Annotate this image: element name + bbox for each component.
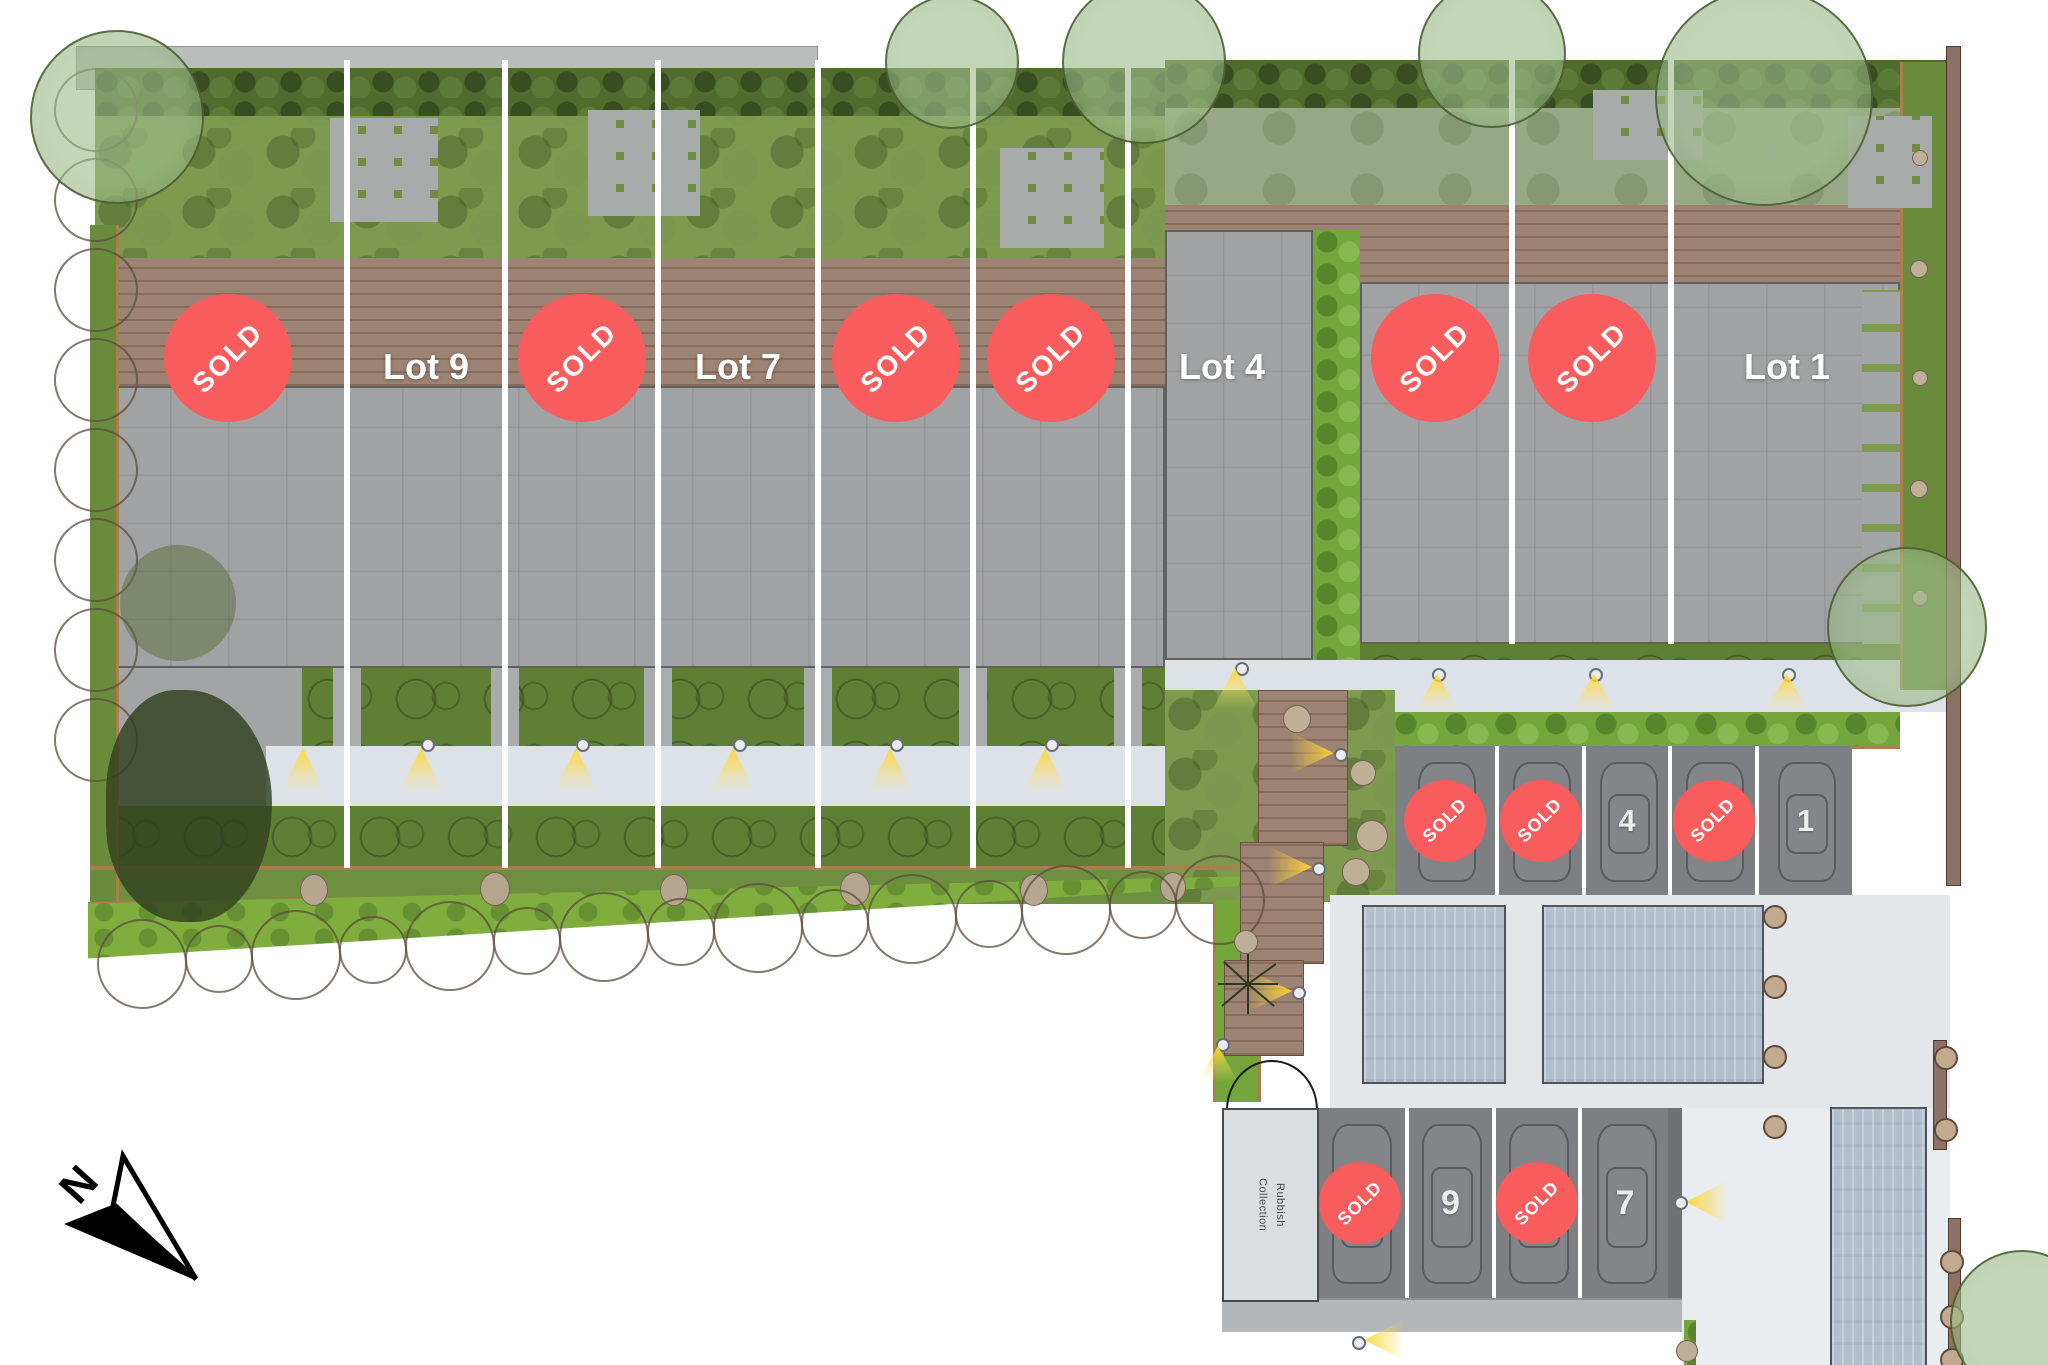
sold-badge-label: SOLD: [1510, 1176, 1563, 1229]
tree-outline: [185, 925, 253, 993]
lot-unit[interactable]: Lot 4: [1131, 60, 1313, 660]
sold-badge: SOLD: [1496, 1162, 1578, 1244]
lot-unit[interactable]: SOLD: [112, 60, 344, 868]
gate-swing: [1272, 1060, 1318, 1110]
stepping-stone: [1356, 820, 1388, 852]
tree-outline: [1109, 871, 1177, 939]
sold-badge: SOLD: [1500, 780, 1582, 862]
north-label: N: [50, 1157, 108, 1213]
lot-unit[interactable]: SOLD: [976, 60, 1125, 868]
agave-plant-icon: [1216, 952, 1280, 1016]
sold-badge-label: SOLD: [1687, 794, 1740, 847]
bollard: [1934, 1046, 1958, 1070]
wall-light: [1674, 1196, 1688, 1210]
lot-unit[interactable]: SOLD: [1515, 60, 1668, 644]
parking-stall[interactable]: 4: [1586, 746, 1668, 895]
lot-label: Lot 4: [1179, 346, 1265, 388]
tree-outline: [647, 898, 715, 966]
sold-badge-label: SOLD: [186, 316, 269, 399]
stall-number: 7: [1616, 1184, 1635, 1223]
parking-stall[interactable]: SOLD: [1499, 746, 1582, 895]
lot-label: Lot 7: [695, 346, 781, 388]
stepping-stone: [1350, 760, 1376, 786]
path-light: [1292, 986, 1306, 1000]
tree-outline: [867, 874, 957, 964]
parking-stall[interactable]: SOLD: [1672, 746, 1755, 895]
bollard: [1763, 905, 1787, 929]
tree-outline: [97, 919, 187, 1009]
bollard: [1940, 1250, 1964, 1274]
lot-unit[interactable]: Lot 1: [1674, 60, 1900, 644]
sold-badge: SOLD: [518, 294, 646, 422]
garage-roof: [1542, 905, 1764, 1084]
rubbish-collection-label: Rubbish Collection: [1253, 1178, 1288, 1231]
tree-outline: [559, 892, 649, 982]
stepping-stone: [1912, 150, 1928, 166]
sold-badge-label: SOLD: [1514, 794, 1567, 847]
sold-badge-label: SOLD: [1418, 794, 1471, 847]
parking-stall[interactable]: SOLD: [1315, 1108, 1405, 1298]
tree-outline: [493, 907, 561, 975]
bollard: [1763, 975, 1787, 999]
tree-outline: [955, 880, 1023, 948]
parking-stall[interactable]: 9: [1409, 1108, 1492, 1298]
parking-stall[interactable]: 7: [1582, 1108, 1668, 1298]
lot-unit[interactable]: SOLD: [821, 60, 970, 868]
sold-badge: SOLD: [832, 294, 960, 422]
stepping-stone: [1912, 370, 1928, 386]
lot-unit[interactable]: Lot 7: [661, 60, 815, 868]
shrub: [480, 872, 510, 906]
garage-roof: [1362, 905, 1506, 1084]
path-light: [1312, 862, 1326, 876]
fence-post: [1676, 1340, 1698, 1362]
sold-badge-label: SOLD: [1333, 1176, 1386, 1229]
tree-outline: [251, 910, 341, 1000]
sold-badge-label: SOLD: [1550, 316, 1633, 399]
site-plan: SOLD SOLD 4 SOLD 1 Rubbis: [0, 0, 2048, 1365]
upper-parking-row: SOLD SOLD 4 SOLD 1: [1395, 746, 1852, 895]
parking-apron: [1222, 1298, 1682, 1332]
lot-label: Lot 1: [1744, 346, 1830, 388]
sold-badge-label: SOLD: [854, 316, 937, 399]
north-arrow-icon: N: [40, 1130, 240, 1330]
bollard: [1763, 1115, 1787, 1139]
lot-unit[interactable]: Lot 9: [350, 60, 502, 868]
tree-outline: [801, 889, 869, 957]
path-light: [1352, 1336, 1366, 1350]
side-garden-strip: [1313, 230, 1360, 660]
lot-unit[interactable]: SOLD: [1360, 60, 1509, 644]
parking-hedge-strip: [1392, 712, 1900, 749]
stepping-stone: [1910, 260, 1928, 278]
lower-parking-row: SOLD 9 SOLD 7: [1315, 1108, 1668, 1298]
bollard: [1934, 1118, 1958, 1142]
boundary-fence: [1946, 46, 1961, 886]
sold-badge: SOLD: [1673, 780, 1755, 862]
tree-outline: [713, 883, 803, 973]
stepping-stone: [1283, 705, 1311, 733]
tree-canopy: [1950, 1250, 2048, 1365]
sold-badge: SOLD: [1528, 294, 1656, 422]
tree-outline: [1021, 865, 1111, 955]
lot-unit[interactable]: SOLD: [508, 60, 655, 868]
sold-badge-label: SOLD: [540, 316, 623, 399]
stall-number: 9: [1441, 1184, 1460, 1223]
sold-badge: SOLD: [164, 294, 292, 422]
sold-badge: SOLD: [1404, 780, 1486, 862]
shrub: [300, 874, 328, 906]
lot-label: Lot 9: [383, 346, 469, 388]
sold-badge: SOLD: [1319, 1162, 1401, 1244]
parking-stall[interactable]: 1: [1759, 746, 1852, 895]
sold-badge-label: SOLD: [1009, 316, 1092, 399]
parking-stall[interactable]: SOLD: [1496, 1108, 1578, 1298]
tree-outline: [339, 916, 407, 984]
stall-number: 1: [1797, 803, 1814, 839]
sold-badge-label: SOLD: [1393, 316, 1476, 399]
parking-stall[interactable]: SOLD: [1395, 746, 1495, 895]
sold-badge: SOLD: [1371, 294, 1499, 422]
sold-badge: SOLD: [987, 294, 1115, 422]
rubbish-collection-room: Rubbish Collection: [1222, 1108, 1319, 1302]
bollard: [1763, 1045, 1787, 1069]
stepping-stone: [1342, 858, 1370, 886]
path-light: [1334, 748, 1348, 762]
stall-number: 4: [1618, 803, 1635, 839]
tree-outline: [405, 901, 495, 991]
garage-roof: [1830, 1107, 1927, 1365]
stepping-stone: [1910, 480, 1928, 498]
stepping-stone: [1234, 930, 1258, 954]
